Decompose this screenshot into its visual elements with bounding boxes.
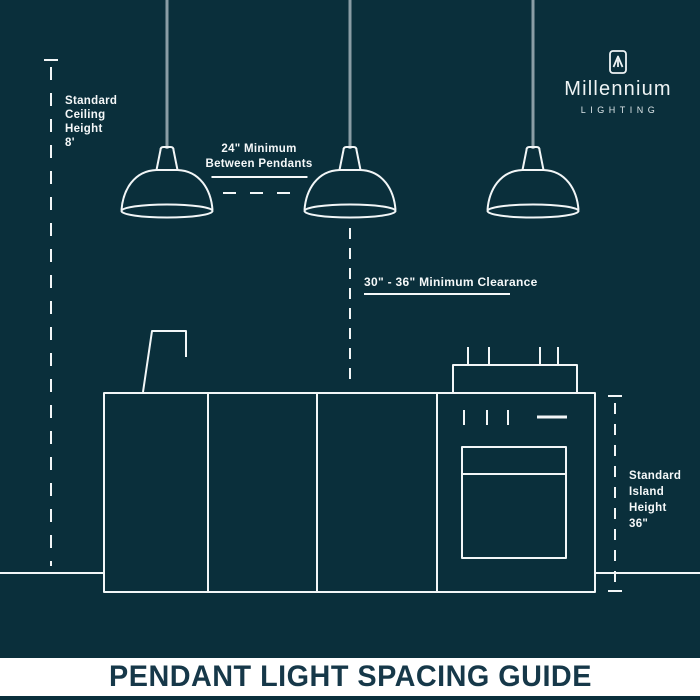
brand-logo: Millennium LIGHTING	[540, 50, 696, 115]
burner-grates	[468, 347, 558, 364]
label-line: Standard	[629, 468, 681, 484]
millennium-peak-icon	[609, 50, 627, 74]
ceiling-height-label: Standard Ceiling Height 8'	[65, 94, 117, 150]
footer-title: PENDANT LIGHT SPACING GUIDE	[109, 660, 592, 694]
island-body	[104, 393, 595, 592]
label-line: Height	[629, 500, 681, 516]
label-line: 8'	[65, 136, 117, 150]
range-back-panel	[453, 365, 577, 393]
pendant-cords	[167, 0, 533, 149]
pendant-3	[488, 147, 579, 218]
island-height-label: Standard Island Height 36"	[629, 468, 681, 532]
label-underline	[364, 293, 510, 295]
label-underline	[211, 176, 307, 178]
pendant-1	[122, 147, 213, 218]
clearance-label: 30" - 36" Minimum Clearance	[364, 275, 538, 295]
label-line: Standard	[65, 94, 117, 108]
label-line: Ceiling	[65, 108, 117, 122]
brand-subtitle: LIGHTING	[540, 105, 696, 115]
faucet	[143, 331, 186, 392]
label-line: 30" - 36" Minimum Clearance	[364, 275, 538, 289]
label-line: 36"	[629, 516, 681, 532]
island-height-dimension-line	[608, 396, 622, 591]
label-line: Height	[65, 122, 117, 136]
oven-door	[462, 447, 566, 558]
label-line: Between Pendants	[205, 157, 312, 172]
label-line: 24" Minimum	[205, 142, 312, 157]
pendant-2	[305, 147, 396, 218]
pendant-spacing-infographic: Standard Ceiling Height 8' 24" Minimum B…	[0, 0, 700, 700]
label-line: Island	[629, 484, 681, 500]
footer-bar: PENDANT LIGHT SPACING GUIDE	[0, 658, 700, 696]
range-knobs	[464, 410, 508, 425]
pendant-spacing-label: 24" Minimum Between Pendants	[205, 142, 312, 178]
brand-name: Millennium	[540, 78, 696, 101]
ceiling-height-dimension-line	[44, 60, 58, 566]
